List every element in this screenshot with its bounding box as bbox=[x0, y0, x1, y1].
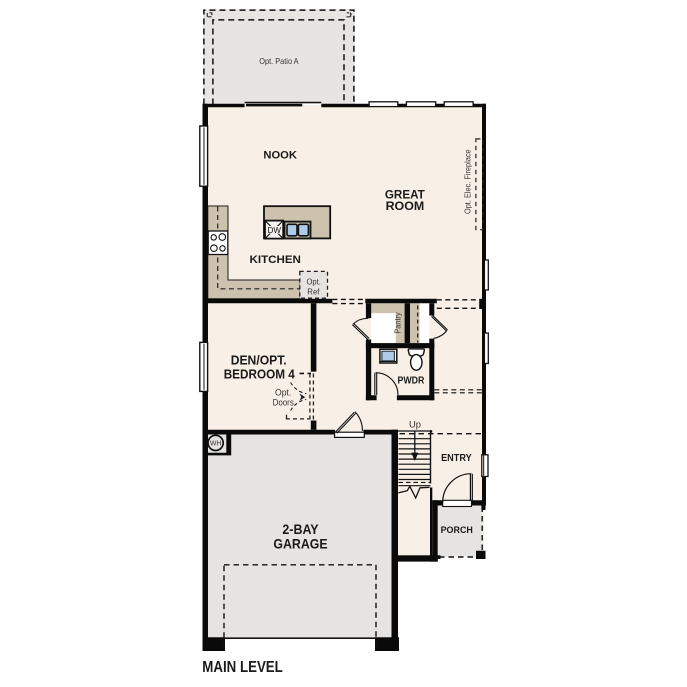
svg-text:Pantry: Pantry bbox=[393, 312, 403, 334]
svg-text:KITCHEN: KITCHEN bbox=[250, 254, 301, 266]
svg-text:Ref: Ref bbox=[307, 287, 320, 297]
svg-text:GARAGE: GARAGE bbox=[273, 537, 327, 552]
svg-text:Opt. Elec. Fireplace: Opt. Elec. Fireplace bbox=[464, 149, 473, 214]
svg-text:DW: DW bbox=[268, 225, 281, 235]
svg-text:NOOK: NOOK bbox=[263, 149, 297, 161]
svg-text:2-BAY: 2-BAY bbox=[282, 522, 318, 537]
svg-text:ENTRY: ENTRY bbox=[441, 453, 472, 464]
svg-text:Opt. Patio A: Opt. Patio A bbox=[259, 56, 299, 66]
svg-text:Opt.: Opt. bbox=[275, 388, 291, 398]
svg-text:DEN/OPT.: DEN/OPT. bbox=[231, 353, 287, 368]
svg-text:PWDR: PWDR bbox=[398, 374, 425, 386]
svg-text:BEDROOM 4: BEDROOM 4 bbox=[224, 367, 296, 382]
svg-text:MAIN LEVEL: MAIN LEVEL bbox=[202, 659, 283, 676]
svg-text:Opt.: Opt. bbox=[307, 277, 321, 287]
svg-text:Doors: Doors bbox=[273, 398, 295, 408]
svg-text:Up: Up bbox=[409, 420, 421, 430]
svg-text:WH: WH bbox=[210, 439, 222, 448]
svg-text:PORCH: PORCH bbox=[441, 525, 473, 536]
svg-text:ROOM: ROOM bbox=[386, 199, 425, 213]
